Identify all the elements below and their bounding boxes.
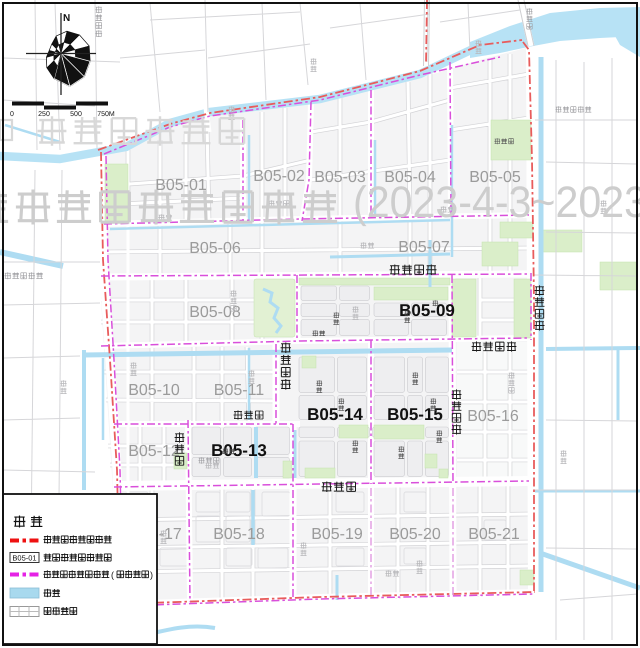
- svg-text:B05-01: B05-01: [12, 554, 36, 563]
- svg-text:0: 0: [10, 111, 14, 118]
- svg-text:500: 500: [70, 111, 82, 118]
- svg-text:B05-10: B05-10: [128, 382, 180, 399]
- svg-text:B05-20: B05-20: [389, 526, 441, 543]
- svg-text:B05-12: B05-12: [128, 443, 180, 460]
- svg-text:B05-14: B05-14: [307, 405, 363, 424]
- svg-text:B05-21: B05-21: [468, 526, 520, 543]
- svg-text:B05-01: B05-01: [155, 177, 207, 194]
- svg-text:(: (: [111, 570, 114, 580]
- svg-text:250: 250: [38, 111, 50, 118]
- svg-text:B05-07: B05-07: [398, 239, 450, 256]
- svg-text:B05-06: B05-06: [189, 240, 241, 257]
- svg-text:B05-19: B05-19: [311, 526, 363, 543]
- svg-text:B05-16: B05-16: [467, 408, 519, 425]
- svg-text:B05-18: B05-18: [213, 526, 265, 543]
- svg-text:(2023-4-3~2023: (2023-4-3~2023: [353, 178, 640, 227]
- svg-text:750M: 750M: [97, 111, 115, 118]
- svg-text:): ): [150, 570, 153, 580]
- svg-text:B05-11: B05-11: [214, 382, 265, 399]
- svg-text:B05-08: B05-08: [189, 304, 241, 321]
- svg-text:B05-02: B05-02: [253, 168, 305, 185]
- svg-text:N: N: [63, 13, 70, 24]
- svg-text:B05-13: B05-13: [211, 441, 267, 460]
